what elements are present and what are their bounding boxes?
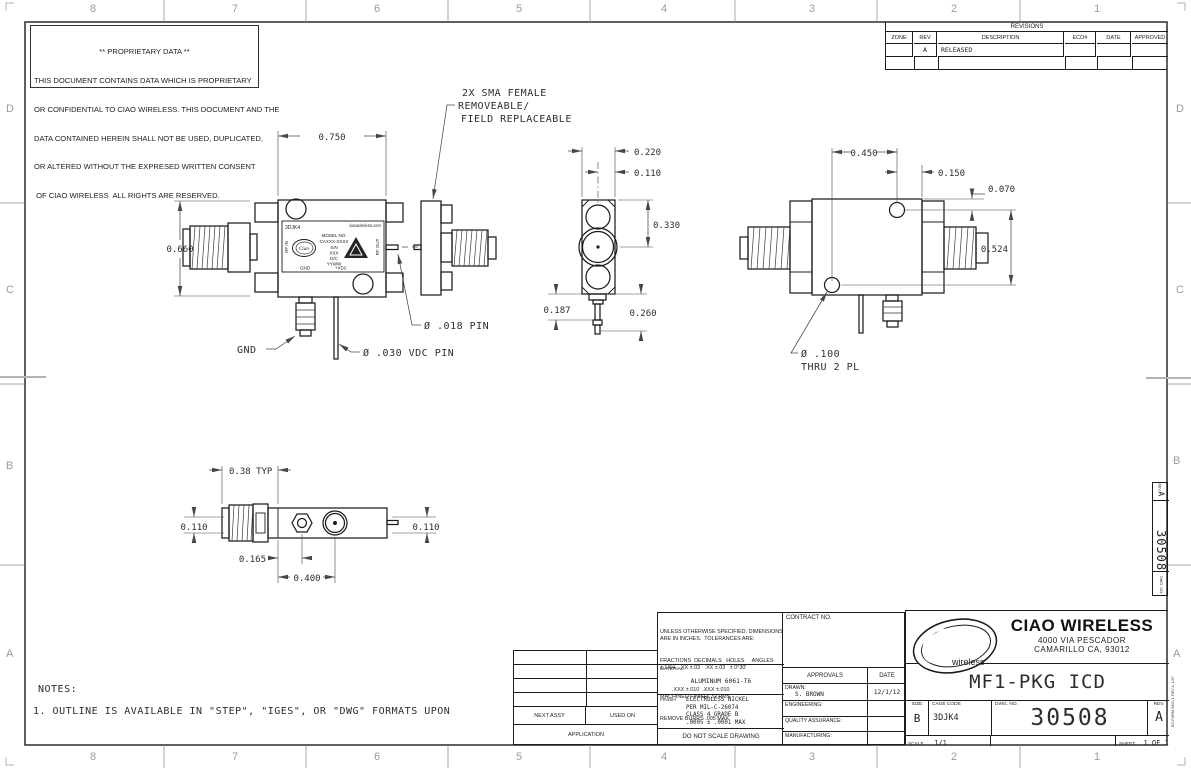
zone-col-8-top: 8 [90,3,96,15]
do-not-scale-label: DO NOT SCALE DRAWING [658,729,784,745]
drawing-sheet: { "sheet": { "zone_cols": ["8","7","6","… [0,0,1191,768]
dim-bot-circle: 0.400 [293,574,320,584]
zone-col-3-top: 3 [809,3,815,15]
approvals-block: CONTRACT NO. APPROVALS DATE DRAWN: S. BR… [783,612,905,745]
revisions-header-eco: ECO# [1065,32,1096,44]
proprietary-line: ** PROPRIETARY DATA ** [34,47,255,57]
ciao-wireless-logo-icon: C iao wireless [910,613,1005,685]
rev-label: REV. [1149,701,1169,707]
proprietary-line: THIS DOCUMENT CONTAINS DATA WHICH IS PRO… [34,76,255,86]
scale-value: 1/1 [928,739,947,747]
front-callouts: GND Ø .030 VDC PIN Ø .018 PIN 2X SMA FEM… [237,88,572,359]
dim-end-stub: 0.187 [543,306,570,316]
scale-row: SCALE 1/1 SHEET 1 OF 1 [906,736,1169,746]
revision-row-zone [886,44,913,57]
approval-row-qa: QUALITY ASSURANCE: [783,717,905,732]
revisions-header-date: DATE [1097,32,1131,44]
label-gnd: GND [300,266,311,271]
revisions-title: REVISIONS [886,22,1168,32]
note-item-1: 1. OUTLINE IS AVAILABLE IN "STEP", "IGES… [33,706,450,717]
zone-col-2-top: 2 [951,3,957,15]
label-vdc: +VDC [335,266,348,271]
label-dc-label: D/C [330,256,339,261]
zone-col-3-bottom: 3 [809,751,815,763]
sheet-label: SHEET [1117,742,1135,747]
application-block: NEXT ASSY USED ON APPLICATION [513,650,657,745]
company-name: CIAO WIRELESS [998,616,1166,636]
callout-sma-3: FIELD REPLACEABLE [461,114,572,125]
proprietary-line: OR ALTERED WITHOUT THE EXPRESED WRITTEN … [34,162,255,172]
dim-front-height: 0.660 [166,245,193,255]
revisions-header-description: DESCRIPTION [938,32,1064,44]
label-rf-out: RF OUT [375,238,380,255]
back-dims: 0.450 0.150 0.070 0.524 Ø .100 THRU 2 PL [791,148,1016,373]
callout-gnd: GND [237,345,257,356]
zone-row-a-left: A [6,648,13,660]
cage-code-value: 3DJK4 [930,707,991,723]
svg-text:iao: iao [948,631,986,660]
size-value: B [906,712,928,725]
zone-col-4-top: 4 [661,3,667,15]
dim-back-hole-span: 0.450 [850,149,877,159]
finish-label: FINISH [660,698,676,703]
callout-hole-2: THRU 2 PL [801,362,860,373]
proprietary-line: OF CIAO WIRELESS ALL RIGHTS ARE RESERVED… [34,191,255,201]
zone-row-b-right: B [1173,455,1180,467]
dim-end-pin-offset: 0.110 [634,169,661,179]
sheet-value: 1 OF 1 [1139,739,1168,747]
company-row: C iao wireless CIAO WIRELESS 4000 VIA PE… [906,611,1169,664]
material-label: MATERIAL [658,665,784,672]
rev-value: A [1149,710,1169,725]
approval-row-drawn: DRAWN: S. BROWN 12/1/12 [783,684,905,701]
dim-bot-right: 0.110 [412,523,439,533]
svg-text:wireless: wireless [951,657,985,667]
label-sn-label: S/N [330,245,338,250]
approvals-date-header: DATE [869,668,905,684]
zone-col-2-bottom: 2 [951,751,957,763]
zone-row-a-right: A [1173,648,1180,660]
zone-col-5-top: 5 [516,3,522,15]
revisions-header-zone: ZONE [886,32,913,44]
edge-dwg-strip: REV.A 30508 DWG. NO. [1152,482,1168,596]
contract-cell: CONTRACT NO. [783,613,905,668]
approvals-header: APPROVALS [783,668,868,684]
dim-bot-left: 0.110 [180,523,207,533]
proprietary-line: OR CONFIDENTIAL TO CIAO WIRELESS. THIS D… [34,105,255,115]
revision-row-rev: A [914,44,937,57]
next-assy-label: NEXT ASSY [514,707,586,725]
dim-back-hole-edge: 0.150 [938,169,965,179]
callout-rf-pin: Ø .018 PIN [424,320,489,332]
zone-row-c-left: C [6,284,14,296]
zone-col-6-bottom: 6 [374,751,380,763]
tolerances-cell: UNLESS OTHERWISE SPECIFIED: DIMENSIONSAR… [658,613,784,665]
dim-end-height: 0.330 [653,221,680,231]
dim-back-hole-top: 0.070 [988,185,1015,195]
company-address2: CAMARILLO CA, 93012 [998,645,1166,654]
dwg-no-value: 30508 [993,705,1147,731]
zone-row-d-left: D [6,103,14,115]
approval-row-engineering: ENGINEERING: [783,701,905,717]
device-label: 3DJK4 ciaowireless.com MODEL NO. CAXXX-X… [282,221,384,272]
label-model-label: MODEL NO. [321,233,346,238]
zone-row-d-right: D [1176,103,1184,115]
end-view: 0.220 0.110 0.330 0.187 0.260 [543,147,680,341]
tolerance-block: UNLESS OTHERWISE SPECIFIED: DIMENSIONSAR… [657,612,783,745]
zone-row-b-left: B [6,460,13,472]
zone-col-1-top: 1 [1094,3,1100,15]
revisions-header-approved: APPROVED [1132,32,1168,44]
approval-row-mfg: MANUFACTURING: [783,732,905,746]
zone-row-c-right: C [1176,284,1184,296]
dim-front-width: 0.750 [318,133,345,143]
callout-sma-2: REMOVEABLE/ [458,101,530,112]
zone-col-4-bottom: 4 [661,751,667,763]
revision-row-eco [1065,44,1096,57]
size-label: SIZE [906,701,928,707]
zone-col-8-bottom: 8 [90,751,96,763]
callout-hole-1: Ø .100 [801,348,840,360]
revision-row-description: RELEASED [938,44,1064,57]
callout-vdc-pin: Ø .030 VDC PIN [363,347,454,359]
edge-rev: REV.A [1157,484,1166,500]
scale-label: SCALE [906,742,924,747]
zone-col-6-top: 6 [374,3,380,15]
revision-row-date [1097,44,1131,57]
company-address1: 4000 VIA PESCADOR [998,636,1166,645]
material-value: ALUMINUM 6061-T6 [658,678,784,685]
dim-bot-conn: 0.38 TYP [229,467,273,477]
zone-col-7-bottom: 7 [232,751,238,763]
label-model: CAXXX-XXXX [320,239,349,244]
back-view: 0.450 0.150 0.070 0.524 Ø .100 THRU 2 PL [740,148,1016,373]
dim-bot-hex: 0.165 [239,555,266,565]
dim-back-hole-vspan: 0.524 [981,245,1008,255]
svg-text:Ciao: Ciao [299,246,310,252]
proprietary-notice: ** PROPRIETARY DATA ** THIS DOCUMENT CON… [30,25,259,88]
revisions-table: REVISIONS ZONE REV DESCRIPTION ECO# DATE… [885,22,1167,70]
finish-cell: FINISH ELECTROLESS NICKELPER MIL-C-26074… [658,695,784,729]
label-sn: XXX [329,251,338,256]
edge-dwg-label: DWG. NO. [1159,576,1163,592]
zone-col-7-top: 7 [232,3,238,15]
label-rf-in: RF IN [284,241,289,253]
used-on-label: USED ON [587,707,658,725]
dim-end-width: 0.220 [634,148,661,158]
dim-end-pin-len: 0.260 [629,309,656,319]
bottom-view: 0.38 TYP 0.110 0.110 0.165 0.400 [180,466,439,584]
application-label: APPLICATION [514,725,658,745]
title-block: C iao wireless CIAO WIRELESS 4000 VIA PE… [905,610,1168,745]
revisions-header-rev: REV [914,32,937,44]
form-note: BG-FORM 0001-1, REV A, 1/97 [1168,698,1178,748]
edge-dwg-no: 30508 [1154,530,1168,546]
fields-row: SIZE B CAGE CODE 3DJK4 DWG. NO. 30508 RE… [906,701,1169,736]
zone-col-1-bottom: 1 [1094,751,1100,763]
bottom-dims: 0.38 TYP 0.110 0.110 0.165 0.400 [180,466,439,584]
zone-col-5-bottom: 5 [516,751,522,763]
notes-title: NOTES: [38,684,77,695]
end-dims: 0.220 0.110 0.330 0.187 0.260 [543,147,680,341]
proprietary-line: DATA CONTAINED HEREIN SHALL NOT BE USED,… [34,134,255,144]
label-part: 3DJK4 [285,225,300,231]
callout-sma-1: 2X SMA FEMALE [462,88,547,99]
label-site: ciaowireless.com [349,223,381,228]
material-cell: MATERIAL ALUMINUM 6061-T6 [658,665,784,695]
revision-row-approved [1132,44,1168,57]
